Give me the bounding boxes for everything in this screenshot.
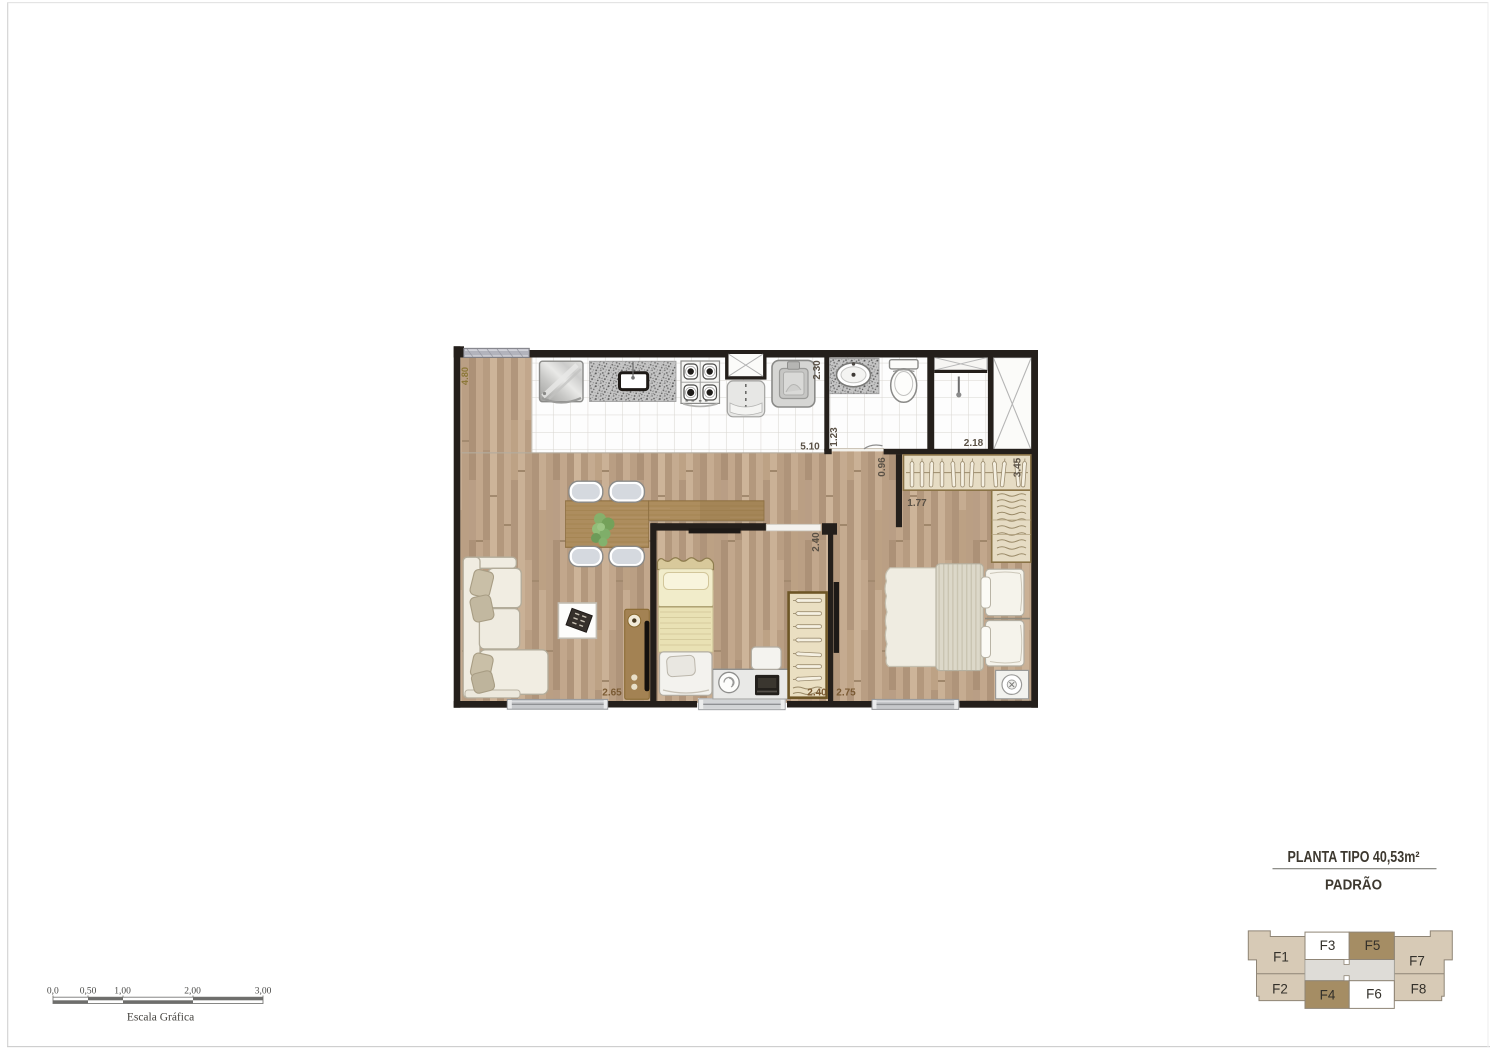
svg-text:2.30: 2.30 — [812, 360, 823, 380]
svg-text:1,00: 1,00 — [114, 987, 131, 997]
svg-text:F2: F2 — [1272, 982, 1288, 997]
svg-text:PADRÃO: PADRÃO — [1325, 876, 1382, 894]
svg-text:1.77: 1.77 — [907, 498, 927, 509]
svg-text:F4: F4 — [1320, 988, 1336, 1003]
svg-text:2.75: 2.75 — [836, 688, 856, 699]
svg-text:F5: F5 — [1365, 938, 1381, 953]
svg-text:2.40: 2.40 — [811, 532, 822, 552]
svg-text:F8: F8 — [1411, 982, 1427, 997]
svg-text:PLANTA TIPO 40,53m²: PLANTA TIPO 40,53m² — [1288, 849, 1420, 866]
svg-text:F1: F1 — [1273, 950, 1289, 965]
svg-text:F6: F6 — [1366, 987, 1382, 1002]
svg-text:2.65: 2.65 — [602, 688, 622, 699]
svg-text:0,0: 0,0 — [47, 987, 59, 997]
svg-text:0,50: 0,50 — [80, 987, 97, 997]
svg-text:F3: F3 — [1320, 938, 1336, 953]
svg-text:5.10: 5.10 — [800, 441, 820, 452]
svg-text:0.96: 0.96 — [877, 457, 888, 477]
svg-text:Escala Gráfica: Escala Gráfica — [127, 1012, 194, 1024]
svg-text:2.18: 2.18 — [964, 438, 984, 449]
svg-text:1.23: 1.23 — [829, 427, 840, 447]
svg-text:3.45: 3.45 — [1012, 457, 1023, 477]
svg-text:4.80: 4.80 — [460, 367, 470, 385]
svg-text:2.40: 2.40 — [807, 688, 827, 699]
svg-text:2,00: 2,00 — [184, 987, 201, 997]
svg-text:3,00: 3,00 — [255, 987, 272, 997]
svg-text:F7: F7 — [1409, 954, 1425, 969]
